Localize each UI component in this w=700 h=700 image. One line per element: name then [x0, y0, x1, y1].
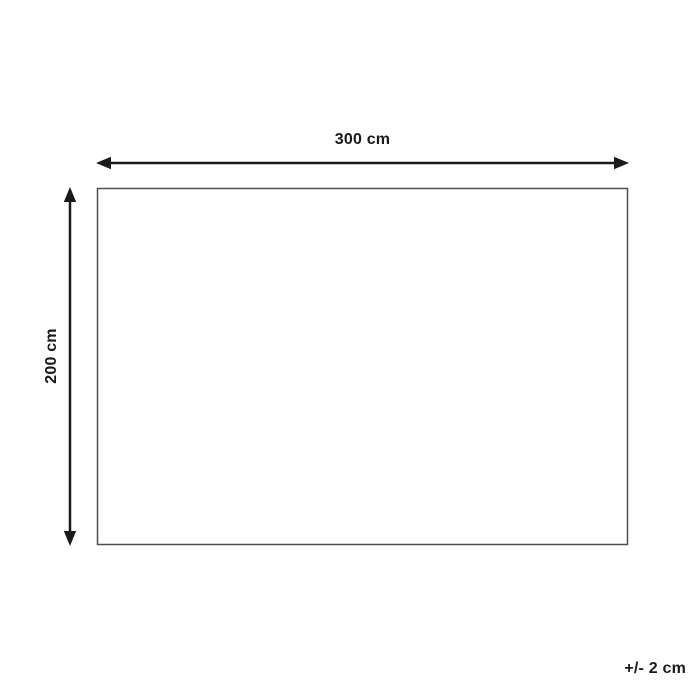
width-dimension-arrow: [96, 157, 629, 169]
height-dimension-arrow: [64, 187, 76, 546]
product-outline-rect: [98, 189, 628, 545]
height-dimension-label: 200 cm: [43, 296, 61, 416]
height-arrow-top-head-icon: [64, 187, 76, 202]
width-dimension-label: 300 cm: [97, 131, 628, 149]
diagram-graphics: [0, 0, 700, 700]
width-arrow-right-head-icon: [614, 157, 629, 169]
height-arrow-bottom-head-icon: [64, 531, 76, 546]
dimension-diagram: 300 cm 200 cm +/- 2 cm: [0, 0, 700, 700]
width-arrow-left-head-icon: [96, 157, 111, 169]
tolerance-label: +/- 2 cm: [624, 660, 686, 678]
